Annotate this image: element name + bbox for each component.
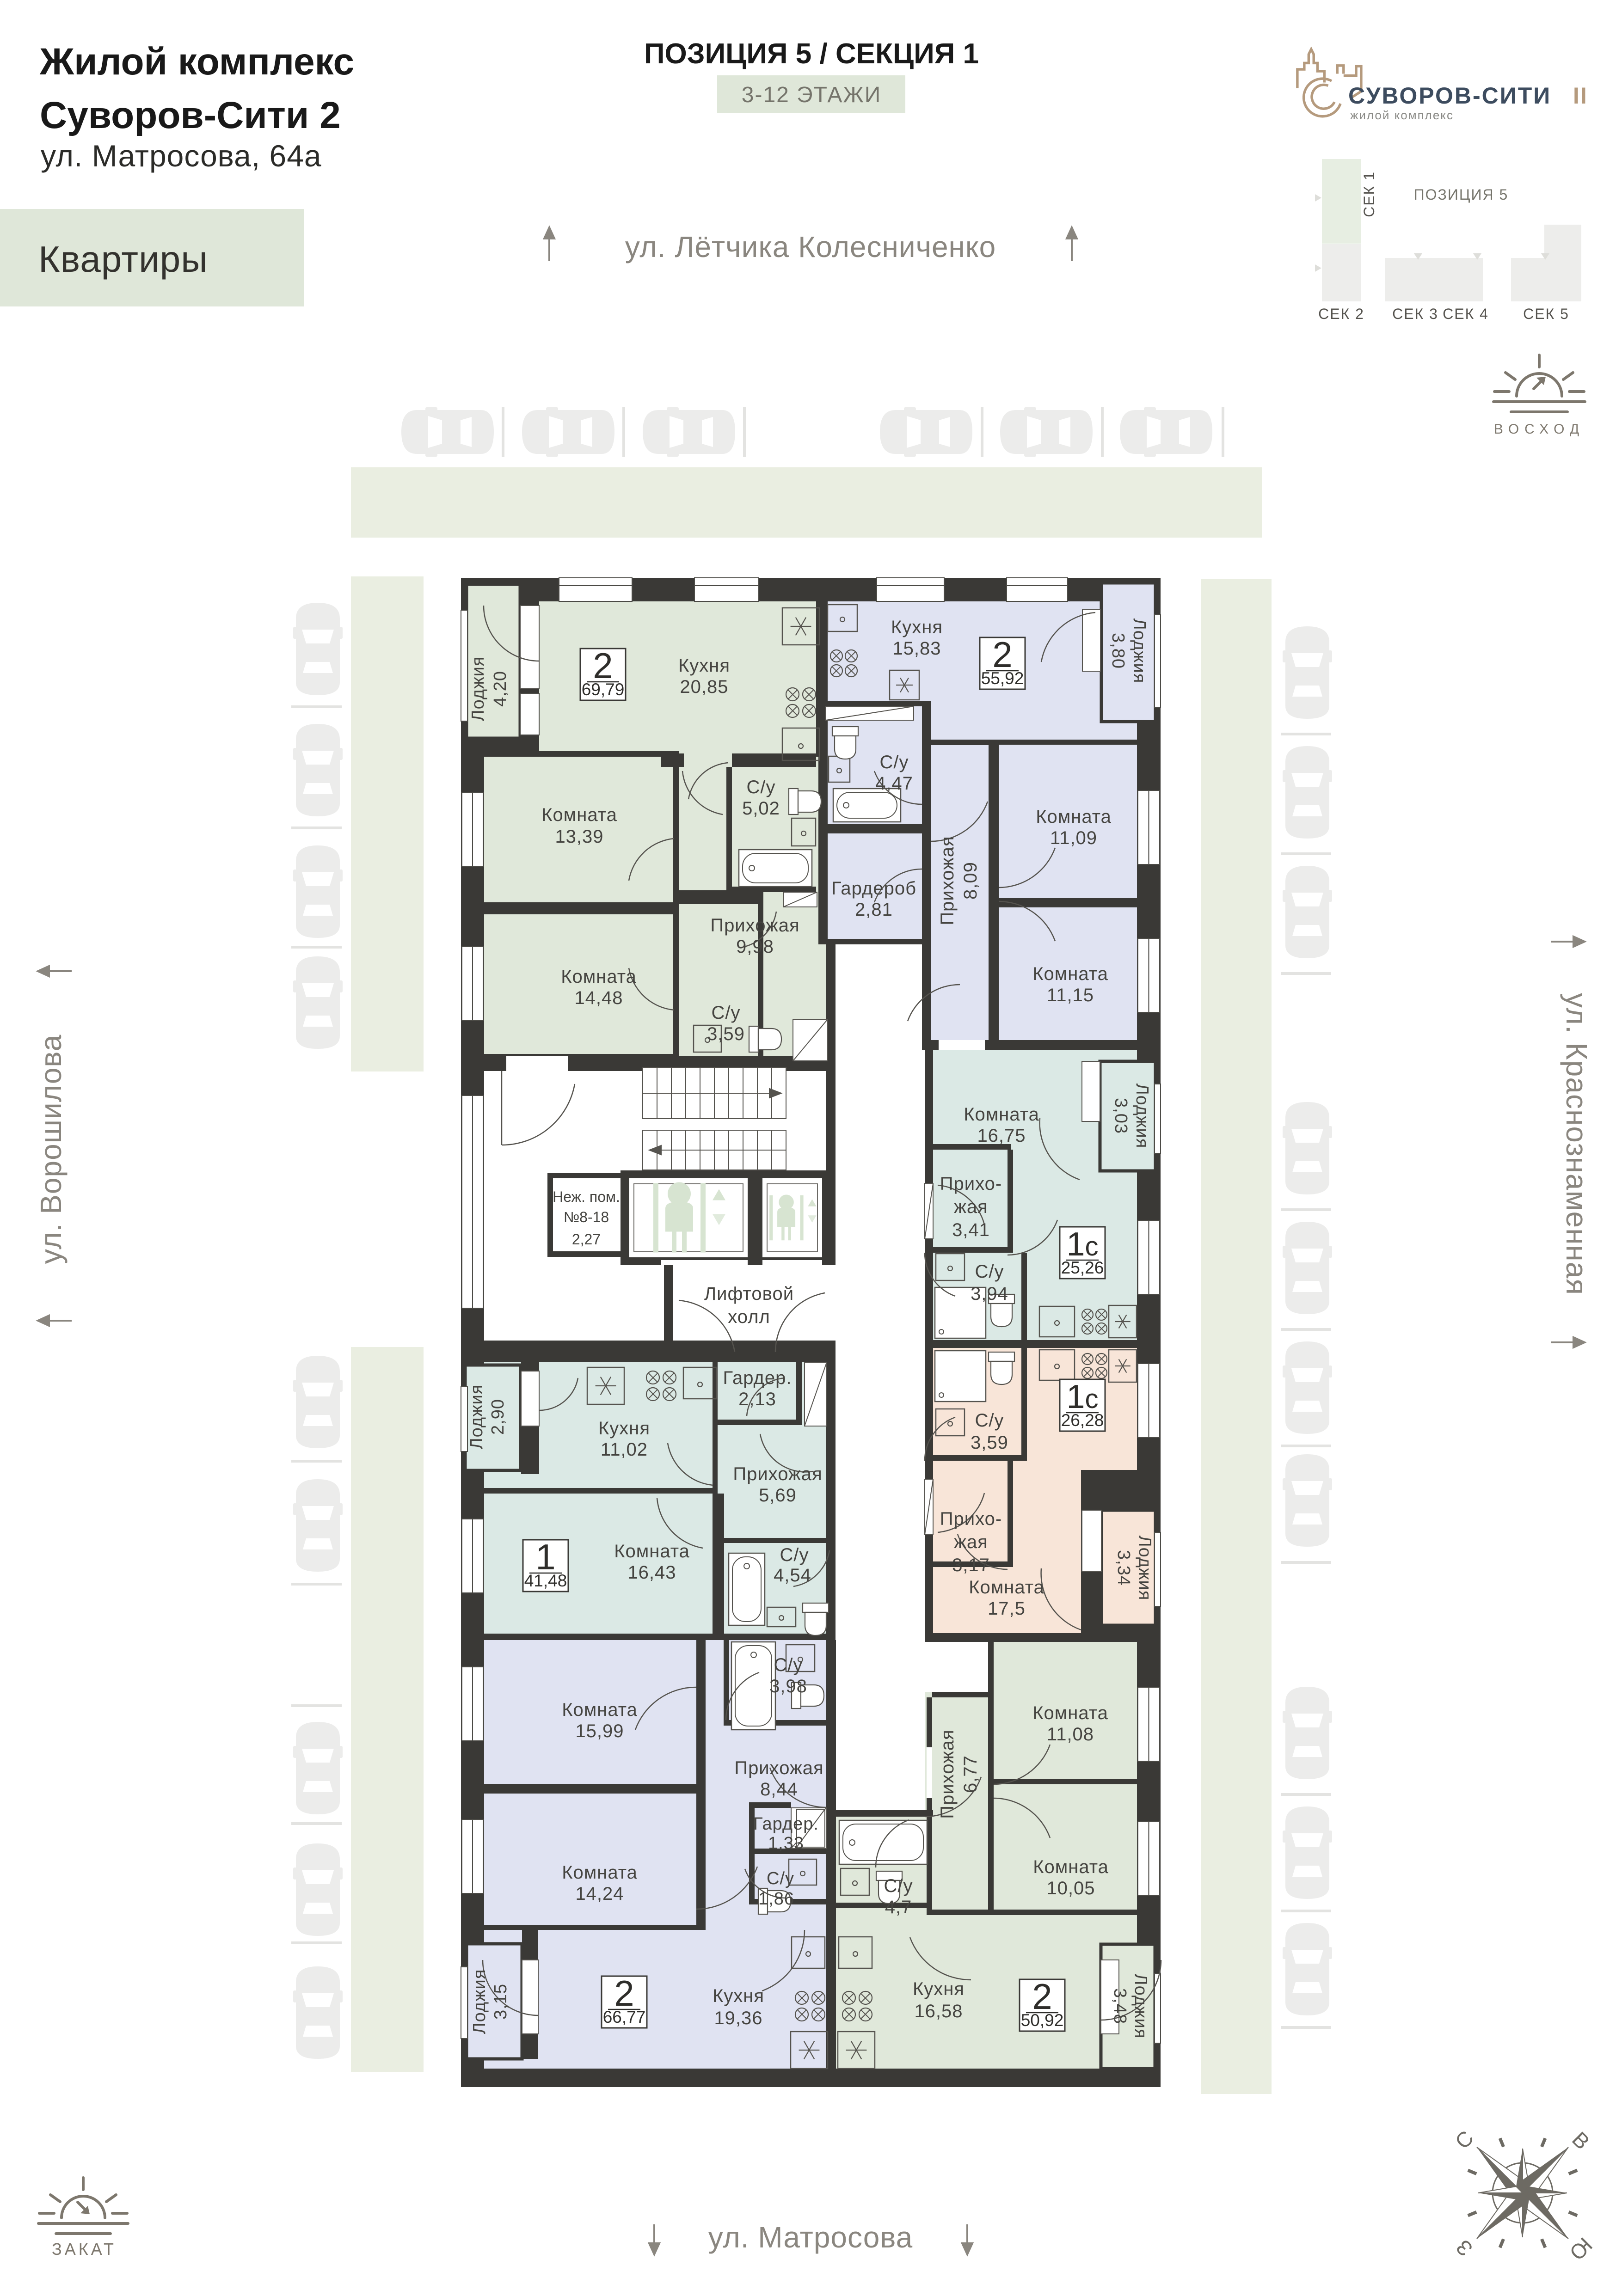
svg-text:Комната: Комната — [1033, 1857, 1109, 1877]
svg-text:ул. Матросова: ул. Матросова — [708, 2221, 913, 2254]
svg-text:20,85: 20,85 — [680, 677, 728, 697]
svg-text:Квартиры: Квартиры — [38, 239, 208, 280]
svg-text:25,26: 25,26 — [1061, 1258, 1104, 1277]
svg-text:19,36: 19,36 — [714, 2008, 762, 2028]
svg-text:16,75: 16,75 — [977, 1126, 1026, 1146]
svg-text:№8-18: №8-18 — [564, 1209, 609, 1225]
svg-text:Лоджия: Лоджия — [1132, 1084, 1152, 1149]
svg-text:9,98: 9,98 — [736, 937, 774, 957]
svg-text:15,99: 15,99 — [575, 1721, 624, 1741]
svg-text:3,34: 3,34 — [1114, 1550, 1133, 1586]
svg-text:13,39: 13,39 — [555, 827, 603, 847]
svg-text:11,02: 11,02 — [601, 1439, 648, 1460]
svg-text:4,7: 4,7 — [885, 1897, 912, 1917]
svg-text:ул. Матросова, 64а: ул. Матросова, 64а — [41, 139, 322, 173]
svg-text:Неж. пом.: Неж. пом. — [553, 1188, 620, 1205]
svg-text:5,02: 5,02 — [742, 798, 780, 819]
svg-text:жая: жая — [954, 1532, 988, 1552]
svg-text:С/у: С/у — [780, 1545, 809, 1565]
svg-text:Прихожая: Прихожая — [710, 915, 799, 936]
svg-text:3,48: 3,48 — [1110, 1988, 1130, 2024]
svg-text:2,81: 2,81 — [855, 900, 893, 920]
svg-text:Комната: Комната — [969, 1577, 1044, 1598]
svg-text:2,27: 2,27 — [572, 1231, 601, 1248]
svg-text:Комната: Комната — [541, 805, 617, 825]
svg-text:4,20: 4,20 — [491, 671, 510, 707]
svg-text:15,83: 15,83 — [892, 638, 941, 659]
svg-text:Лоджия: Лоджия — [1135, 1536, 1155, 1601]
svg-text:СЕК 3: СЕК 3 — [1392, 306, 1438, 322]
svg-text:СЕК 1: СЕК 1 — [1361, 171, 1377, 217]
svg-text:II: II — [1573, 83, 1588, 109]
svg-text:1,86: 1,86 — [758, 1889, 794, 1909]
svg-text:4,47: 4,47 — [875, 773, 913, 794]
svg-text:Лоджия: Лоджия — [1131, 1974, 1150, 2039]
svg-text:Прихо-: Прихо- — [940, 1174, 1002, 1194]
svg-text:СУВОРОВ-СИТИ: СУВОРОВ-СИТИ — [1348, 83, 1551, 109]
svg-text:3,80: 3,80 — [1108, 633, 1128, 669]
svg-text:66,77: 66,77 — [603, 2008, 646, 2027]
svg-text:Гардероб: Гардероб — [831, 878, 916, 899]
svg-text:С/у: С/у — [975, 1261, 1004, 1282]
svg-text:Прихожая: Прихожая — [937, 836, 958, 925]
svg-text:3,59: 3,59 — [971, 1433, 1008, 1453]
svg-text:СЕК 2: СЕК 2 — [1318, 306, 1364, 322]
svg-text:Лифтовой: Лифтовой — [704, 1284, 794, 1304]
svg-text:69,79: 69,79 — [582, 680, 625, 699]
svg-text:50,92: 50,92 — [1021, 2011, 1064, 2030]
svg-text:Комната: Комната — [1036, 807, 1112, 827]
svg-text:С/у: С/у — [747, 777, 776, 797]
svg-text:Комната: Комната — [562, 1862, 638, 1883]
svg-text:Кухня: Кухня — [891, 617, 943, 637]
svg-text:3,98: 3,98 — [769, 1676, 807, 1696]
svg-text:Кухня: Кухня — [598, 1418, 650, 1439]
svg-text:26,28: 26,28 — [1061, 1411, 1104, 1430]
svg-text:С/у: С/у — [975, 1410, 1004, 1431]
svg-text:холл: холл — [728, 1307, 770, 1327]
svg-text:3,94: 3,94 — [971, 1284, 1008, 1304]
svg-text:жая: жая — [954, 1197, 988, 1217]
svg-text:Прихо-: Прихо- — [940, 1509, 1002, 1529]
svg-text:Лоджия: Лоджия — [470, 1969, 489, 2034]
svg-text:3,59: 3,59 — [707, 1024, 745, 1044]
svg-text:2,13: 2,13 — [738, 1389, 776, 1409]
svg-text:ПОЗИЦИЯ 5: ПОЗИЦИЯ 5 — [1414, 186, 1509, 203]
svg-text:С/у: С/у — [774, 1655, 803, 1675]
svg-text:ЗАКАТ: ЗАКАТ — [52, 2240, 117, 2259]
svg-text:СЕК 4: СЕК 4 — [1443, 306, 1489, 322]
svg-text:СЕК 5: СЕК 5 — [1523, 306, 1569, 322]
svg-text:Комната: Комната — [614, 1541, 690, 1561]
svg-text:8,09: 8,09 — [960, 862, 981, 900]
svg-text:Кухня: Кухня — [678, 655, 730, 676]
svg-text:3,15: 3,15 — [491, 1984, 510, 2020]
svg-text:Комната: Комната — [562, 1700, 638, 1720]
svg-text:ПОЗИЦИЯ 5 / СЕКЦИЯ 1: ПОЗИЦИЯ 5 / СЕКЦИЯ 1 — [644, 38, 979, 70]
svg-text:Лоджия: Лоджия — [467, 1384, 486, 1450]
svg-text:Комната: Комната — [1032, 964, 1108, 984]
svg-text:С/у: С/у — [767, 1869, 794, 1888]
svg-text:2,90: 2,90 — [488, 1399, 508, 1435]
svg-text:С/у: С/у — [880, 752, 909, 772]
svg-text:1с: 1с — [1066, 1378, 1098, 1415]
svg-text:11,15: 11,15 — [1047, 985, 1094, 1005]
svg-text:41,48: 41,48 — [524, 1571, 567, 1590]
svg-text:3,17: 3,17 — [952, 1555, 990, 1575]
svg-text:14,48: 14,48 — [574, 988, 623, 1008]
svg-text:жилой комплекс: жилой комплекс — [1350, 108, 1454, 122]
svg-text:16,43: 16,43 — [627, 1562, 676, 1583]
svg-text:Суворов-Сити 2: Суворов-Сити 2 — [40, 94, 341, 136]
svg-text:С/у: С/у — [884, 1876, 913, 1896]
svg-text:8,44: 8,44 — [760, 1779, 798, 1800]
svg-text:Прихожая: Прихожая — [734, 1758, 823, 1778]
svg-text:10,05: 10,05 — [1046, 1878, 1095, 1898]
svg-text:ул. Лётчика Колесниченко: ул. Лётчика Колесниченко — [625, 230, 996, 263]
svg-text:Гардер.: Гардер. — [723, 1368, 792, 1388]
svg-text:Жилой комплекс: Жилой комплекс — [39, 41, 354, 83]
svg-text:1с: 1с — [1066, 1226, 1098, 1263]
svg-text:Кухня: Кухня — [913, 1979, 965, 1999]
svg-text:С/у: С/у — [712, 1003, 741, 1023]
svg-text:Лоджия: Лоджия — [1130, 618, 1149, 684]
svg-text:3-12 ЭТАЖИ: 3-12 ЭТАЖИ — [742, 83, 881, 107]
svg-text:5,69: 5,69 — [759, 1485, 797, 1506]
svg-text:Гардер.: Гардер. — [753, 1814, 819, 1834]
svg-text:1,33: 1,33 — [768, 1834, 804, 1853]
svg-text:14,24: 14,24 — [575, 1884, 624, 1904]
svg-text:3,03: 3,03 — [1111, 1098, 1130, 1134]
svg-text:3,41: 3,41 — [952, 1220, 990, 1240]
svg-text:16,58: 16,58 — [914, 2001, 963, 2021]
svg-text:55,92: 55,92 — [981, 669, 1024, 688]
svg-text:Кухня: Кухня — [713, 1986, 764, 2006]
svg-text:Лоджия: Лоджия — [468, 656, 488, 722]
svg-text:11,09: 11,09 — [1050, 828, 1097, 848]
svg-text:17,5: 17,5 — [988, 1598, 1026, 1619]
svg-text:Комната: Комната — [964, 1104, 1039, 1125]
svg-text:Комната: Комната — [561, 967, 637, 987]
svg-text:11,08: 11,08 — [1047, 1724, 1094, 1745]
svg-text:ул. Ворошилова: ул. Ворошилова — [34, 1035, 68, 1264]
svg-text:Прихожая: Прихожая — [733, 1464, 822, 1484]
svg-text:Комната: Комната — [1032, 1703, 1108, 1723]
svg-text:6,77: 6,77 — [960, 1755, 981, 1793]
svg-text:4,54: 4,54 — [774, 1565, 811, 1586]
svg-text:Прихожая: Прихожая — [937, 1729, 958, 1818]
svg-text:ВОСХОД: ВОСХОД — [1494, 422, 1585, 437]
svg-text:ул. Краснознаменная: ул. Краснознаменная — [1560, 993, 1593, 1295]
